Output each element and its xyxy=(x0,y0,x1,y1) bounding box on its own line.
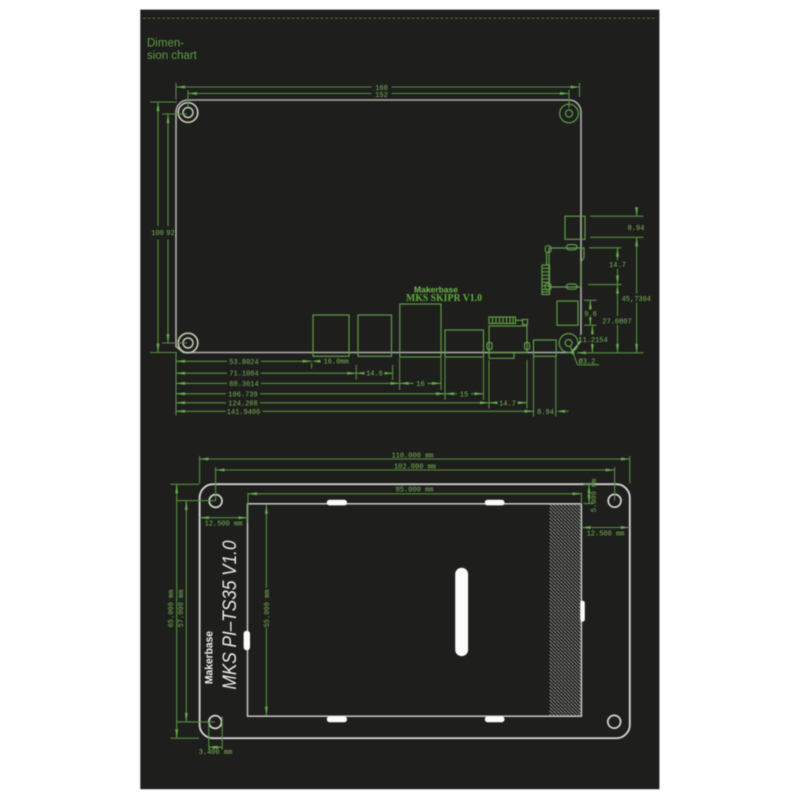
svg-text:Ø3.2: Ø3.2 xyxy=(579,357,596,366)
svg-text:16.0mm: 16.0mm xyxy=(324,359,349,367)
svg-text:88.3614: 88.3614 xyxy=(229,381,258,389)
svg-text:16: 16 xyxy=(416,381,424,389)
svg-text:152: 152 xyxy=(375,92,388,100)
svg-text:27.0807: 27.0807 xyxy=(602,318,631,326)
svg-text:100: 100 xyxy=(151,230,164,238)
svg-text:53.8024: 53.8024 xyxy=(229,359,258,367)
svg-text:3.400 mm: 3.400 mm xyxy=(199,749,233,757)
svg-text:12.500 mm: 12.500 mm xyxy=(205,521,243,529)
svg-text:11.2154: 11.2154 xyxy=(578,337,607,345)
svg-text:8.94: 8.94 xyxy=(537,409,554,417)
svg-text:12.500 mm: 12.500 mm xyxy=(587,531,625,539)
svg-text:92: 92 xyxy=(166,230,174,238)
svg-text:sion chart: sion chart xyxy=(147,50,198,62)
svg-text:110.000 mm: 110.000 mm xyxy=(391,452,433,460)
svg-text:85.000 mm: 85.000 mm xyxy=(396,486,434,494)
svg-text:5.000 mm: 5.000 mm xyxy=(591,479,599,513)
svg-text:15: 15 xyxy=(460,391,468,399)
svg-text:MKS SKIPR V1.0: MKS SKIPR V1.0 xyxy=(406,293,482,304)
svg-text:MKS PI–TS35 V1.0: MKS PI–TS35 V1.0 xyxy=(220,540,241,689)
svg-text:55.000 mm: 55.000 mm xyxy=(264,590,272,628)
svg-text:45,7304: 45,7304 xyxy=(622,296,651,304)
svg-text:Dimen-: Dimen- xyxy=(147,38,184,50)
svg-text:14.7: 14.7 xyxy=(499,400,516,408)
svg-text:102.000 mm: 102.000 mm xyxy=(394,463,436,471)
svg-text:106.739: 106.739 xyxy=(228,391,257,399)
svg-text:57.000 mm: 57.000 mm xyxy=(178,590,186,628)
svg-text:8.94: 8.94 xyxy=(628,225,645,233)
svg-text:Makerbase: Makerbase xyxy=(204,631,216,684)
svg-text:65.000 mm: 65.000 mm xyxy=(168,590,176,628)
svg-text:14.6: 14.6 xyxy=(366,371,383,379)
svg-text:141.9406: 141.9406 xyxy=(227,409,261,417)
svg-text:14.7: 14.7 xyxy=(609,262,626,270)
svg-text:9.6: 9.6 xyxy=(584,311,597,319)
svg-text:71.1084: 71.1084 xyxy=(229,371,258,379)
